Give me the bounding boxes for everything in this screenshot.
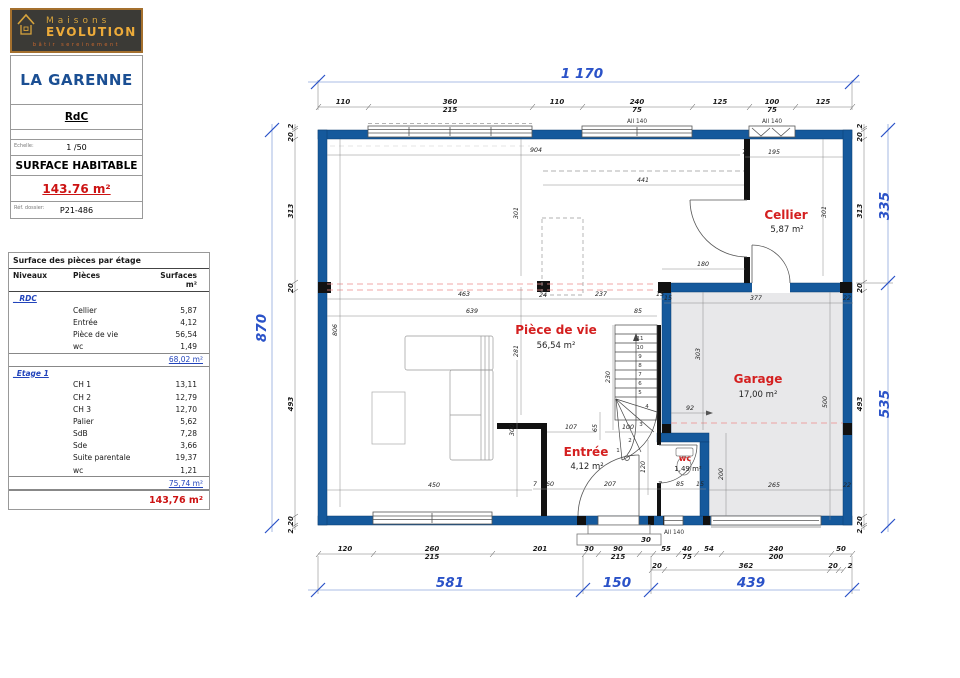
dim-label: 30	[584, 545, 594, 553]
dim-label: 110	[336, 98, 351, 106]
dim-label: 75	[682, 553, 692, 561]
dim-label: 240	[630, 98, 645, 106]
dim-label: 50	[836, 545, 846, 553]
dim-label: 362	[739, 562, 754, 570]
dim-label: 463	[458, 291, 470, 298]
dim-label: 20	[856, 132, 864, 142]
dim-label: 377	[750, 295, 762, 302]
allege-label: All 140	[627, 119, 647, 125]
dim-label: 904	[530, 147, 542, 154]
dim-overall-right-bottom: 535	[877, 390, 893, 418]
room-area-garage: 17,00 m²	[739, 390, 778, 400]
dim-label: 200	[769, 553, 784, 561]
dim-label: 24	[539, 292, 547, 299]
dim-label: 313	[287, 204, 295, 219]
stair-number: 9	[638, 354, 642, 360]
dim-overall-top: 1 170	[561, 66, 603, 82]
dim-label: 201	[533, 545, 548, 553]
room-area-wc: 1,49 m²	[674, 465, 702, 473]
dim-label: 120	[640, 461, 647, 473]
dim-label: 20	[856, 283, 864, 293]
dim-label: 360	[443, 98, 458, 106]
dim-label: 2	[848, 562, 853, 570]
stair-number: 5	[638, 390, 642, 396]
dim-label: 7	[658, 481, 662, 488]
dim-label: 100	[765, 98, 780, 106]
dim-label: 2	[287, 123, 295, 128]
dim-label: 75	[767, 106, 777, 114]
dim-label: 15	[664, 295, 672, 302]
dim-label: 20	[287, 132, 295, 142]
dim-label: 100	[622, 424, 634, 431]
dim-label: 20	[856, 516, 864, 526]
dim-label: 260	[425, 545, 440, 553]
dim-label: 500	[822, 396, 829, 408]
dim-label: 90	[613, 545, 623, 553]
dim-label: 120	[338, 545, 353, 553]
room-area-entree: 4,12 m²	[570, 462, 603, 472]
dim-label: 215	[611, 553, 626, 561]
dim-label: 493	[287, 397, 295, 412]
stair-number: 1	[616, 448, 620, 454]
stair-number: 10	[637, 345, 644, 351]
dim-label: 207	[604, 481, 616, 488]
dim-label: 20	[652, 562, 662, 570]
dim-label: 265	[768, 482, 780, 489]
allege-label: All 140	[762, 119, 782, 125]
dim-label: 110	[550, 98, 565, 106]
dim-label: 60	[546, 481, 554, 488]
dim-label: 107	[565, 424, 577, 431]
dim-overall-left: 870	[254, 314, 270, 342]
dim-label: 30	[641, 536, 651, 544]
dim-label: 237	[595, 291, 607, 298]
sofa	[405, 336, 493, 460]
dim-label: 92	[686, 405, 694, 412]
coffee-table	[372, 392, 405, 444]
dim-label: 15	[656, 291, 664, 298]
dim-overall-bottom-1: 581	[436, 575, 464, 591]
stair-number: 4	[645, 404, 649, 410]
dim-overall-right-top: 335	[877, 192, 893, 220]
dim-label: 65	[592, 424, 599, 432]
dim-label: 20	[287, 283, 295, 293]
dim-label: 301	[821, 206, 828, 218]
dim-label: 493	[856, 397, 864, 412]
dim-label: 7	[533, 481, 537, 488]
floor-plan-sheet: Maisons EVOLUTION bâtir sereinement LA G…	[0, 0, 960, 678]
dim-label: 15	[696, 481, 704, 488]
stair-number: 8	[638, 363, 642, 369]
dim-label: 215	[443, 106, 458, 114]
dim-label: 125	[713, 98, 728, 106]
dim-label: 806	[332, 324, 339, 336]
dim-label: 55	[661, 545, 671, 553]
bay-window-south	[373, 512, 492, 524]
stair-number: 7	[638, 372, 642, 378]
dim-overall-bottom-2: 150	[603, 575, 631, 591]
room-label-entree: Entrée	[564, 445, 609, 459]
dim-label: 125	[816, 98, 831, 106]
dim-label: 20	[828, 562, 838, 570]
dim-label: 441	[637, 177, 649, 184]
dim-label: 301	[513, 207, 520, 219]
room-area-cellier: 5,87 m²	[770, 225, 803, 235]
dim-label: 450	[428, 482, 440, 489]
stair-number: 6	[638, 381, 642, 387]
dim-label: 40	[682, 545, 692, 553]
dim-label: 7	[742, 149, 746, 156]
dim-label: 2	[856, 123, 864, 128]
dim-overall-bottom-3: 439	[736, 575, 765, 591]
dim-label: 303	[695, 348, 702, 360]
dim-label: 180	[697, 261, 709, 268]
dim-label: 313	[856, 204, 864, 219]
room-label-garage: Garage	[734, 372, 783, 386]
entry-door-opening	[598, 516, 639, 525]
room-label-piece-de-vie: Pièce de vie	[515, 323, 596, 337]
floor-plan-drawing: 1 170 870 335 535 581 150 439 110 360 21…	[0, 0, 960, 678]
room-label-cellier: Cellier	[764, 208, 807, 222]
dim-label: 20	[287, 516, 295, 526]
dim-label: 195	[768, 149, 780, 156]
dim-label: 300	[509, 424, 516, 436]
stair-number: 2	[628, 438, 632, 444]
dim-label: 22	[843, 295, 851, 302]
stair-number: 3	[639, 422, 643, 428]
dim-label: 22	[843, 482, 851, 489]
dim-label: 54	[704, 545, 714, 553]
stair-number: 11	[637, 336, 644, 342]
dim-label: 281	[513, 345, 520, 357]
dim-label: 215	[425, 553, 440, 561]
dim-label: 639	[466, 308, 478, 315]
dim-label: 240	[769, 545, 784, 553]
room-area-piece-de-vie: 56,54 m²	[537, 341, 576, 351]
cellier-door-opening	[752, 282, 790, 293]
dim-label: 2	[856, 528, 864, 533]
dim-label: 230	[605, 371, 612, 383]
dim-label: 200	[718, 468, 725, 480]
dim-label: 85	[676, 481, 684, 488]
dim-label: 2	[287, 528, 295, 533]
room-label-wc: wc	[679, 454, 691, 463]
dim-label: 75	[632, 106, 642, 114]
allege-label: All 140	[664, 530, 684, 536]
dim-label: 85	[634, 308, 642, 315]
